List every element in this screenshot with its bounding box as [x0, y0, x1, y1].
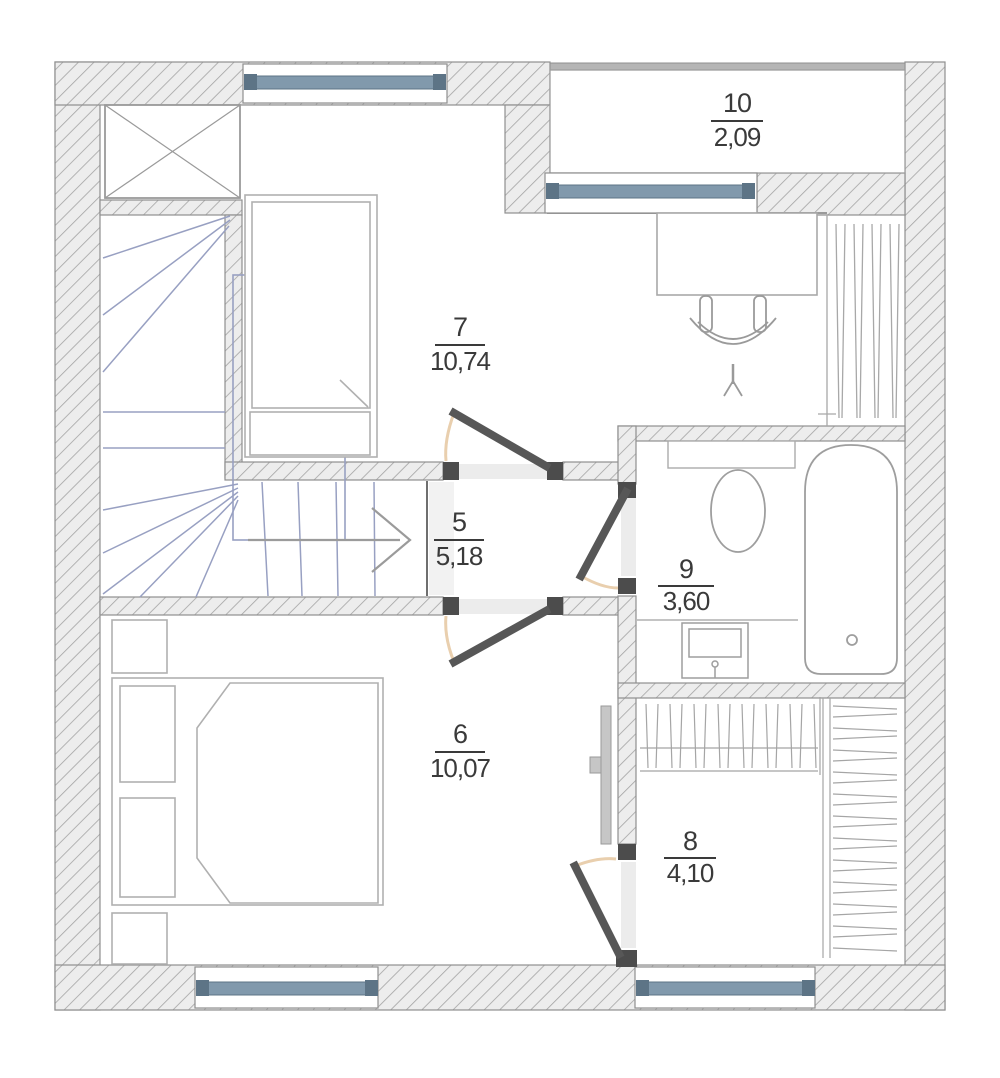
- tv-mount: [590, 757, 601, 773]
- wall-below-shaft: [100, 200, 242, 215]
- toilet-tank: [668, 441, 795, 468]
- wall-bath-top: [618, 426, 905, 441]
- closet8-fittings: [640, 697, 897, 958]
- office-chair: [690, 296, 776, 396]
- door-bathroom-leaf: [581, 492, 626, 576]
- tv: [590, 706, 611, 844]
- door-leaves: [454, 413, 626, 954]
- desk: [657, 213, 817, 295]
- wall-under-balcony: [757, 173, 905, 215]
- door-room7-leaf: [454, 413, 546, 466]
- wardrobe-room7: [818, 215, 899, 426]
- bed-room6: [112, 678, 383, 905]
- room7-number: 7: [453, 312, 467, 342]
- room5-area: 5,18: [436, 541, 483, 571]
- sink: [682, 623, 748, 678]
- room-label-6: 6 10,07: [430, 719, 491, 783]
- room8-number: 8: [683, 826, 697, 856]
- room-label-8: 8 4,10: [664, 826, 716, 888]
- wall-left: [55, 62, 100, 1010]
- room9-number: 9: [679, 554, 693, 584]
- hanging-rail-strokes: [646, 704, 816, 768]
- door-closet-leaf: [575, 866, 619, 954]
- pillow-2: [120, 798, 175, 897]
- pillow-1: [120, 686, 175, 782]
- window-balcony: [545, 173, 757, 213]
- room-label-7: 7 10,74: [430, 312, 491, 376]
- room8-area: 4,10: [667, 858, 714, 888]
- balcony-top-edge: [550, 63, 905, 70]
- wall-hall-bottom-left: [100, 597, 443, 615]
- room6-number: 6: [453, 719, 467, 749]
- wall-bath-left-upper: [618, 426, 636, 484]
- doors: [443, 413, 637, 967]
- room-label-9: 9 3,60: [658, 554, 714, 616]
- room5-number: 5: [452, 507, 466, 537]
- room7-area: 10,74: [430, 346, 491, 376]
- wall-hall-top-left: [225, 462, 443, 480]
- window-bottom-closet: [635, 967, 815, 1008]
- floorplan-svg: 7 10,74 5 5,18 9 3,60 6 10,07 8 4,10 10 …: [0, 0, 1000, 1078]
- room6-area: 10,07: [430, 753, 491, 783]
- bathroom-fixtures: [637, 441, 897, 678]
- stair-direction-arrow: [248, 508, 410, 572]
- blanket: [197, 683, 378, 903]
- window-bottom-bedroom: [195, 967, 378, 1008]
- nightstand-top: [112, 620, 167, 673]
- bathtub: [805, 445, 897, 674]
- floorplan-canvas: 7 10,74 5 5,18 9 3,60 6 10,07 8 4,10 10 …: [0, 0, 1000, 1078]
- nightstand-bottom: [112, 913, 167, 964]
- bed-room7: [245, 195, 377, 457]
- shelf-zigzag-strokes: [833, 706, 897, 951]
- room9-area: 3,60: [663, 586, 710, 616]
- room10-number: 10: [723, 88, 751, 118]
- wall-right: [905, 62, 945, 1010]
- wall-hall-bottom-right: [563, 597, 620, 615]
- ventilation-shaft: [105, 105, 240, 198]
- bedroom6-furniture: [112, 620, 383, 964]
- wall-hall-top-right: [563, 462, 620, 480]
- wall-bath-bottom: [618, 683, 905, 698]
- window-top: [243, 64, 447, 103]
- toilet-bowl: [711, 470, 765, 552]
- bedroom7-furniture: [245, 195, 899, 457]
- door-room6-leaf: [454, 611, 546, 662]
- room10-area: 2,09: [714, 122, 761, 152]
- door-swing-arcs: [446, 413, 618, 866]
- wall-step: [505, 105, 550, 213]
- wall-bath-left-lower: [618, 596, 636, 844]
